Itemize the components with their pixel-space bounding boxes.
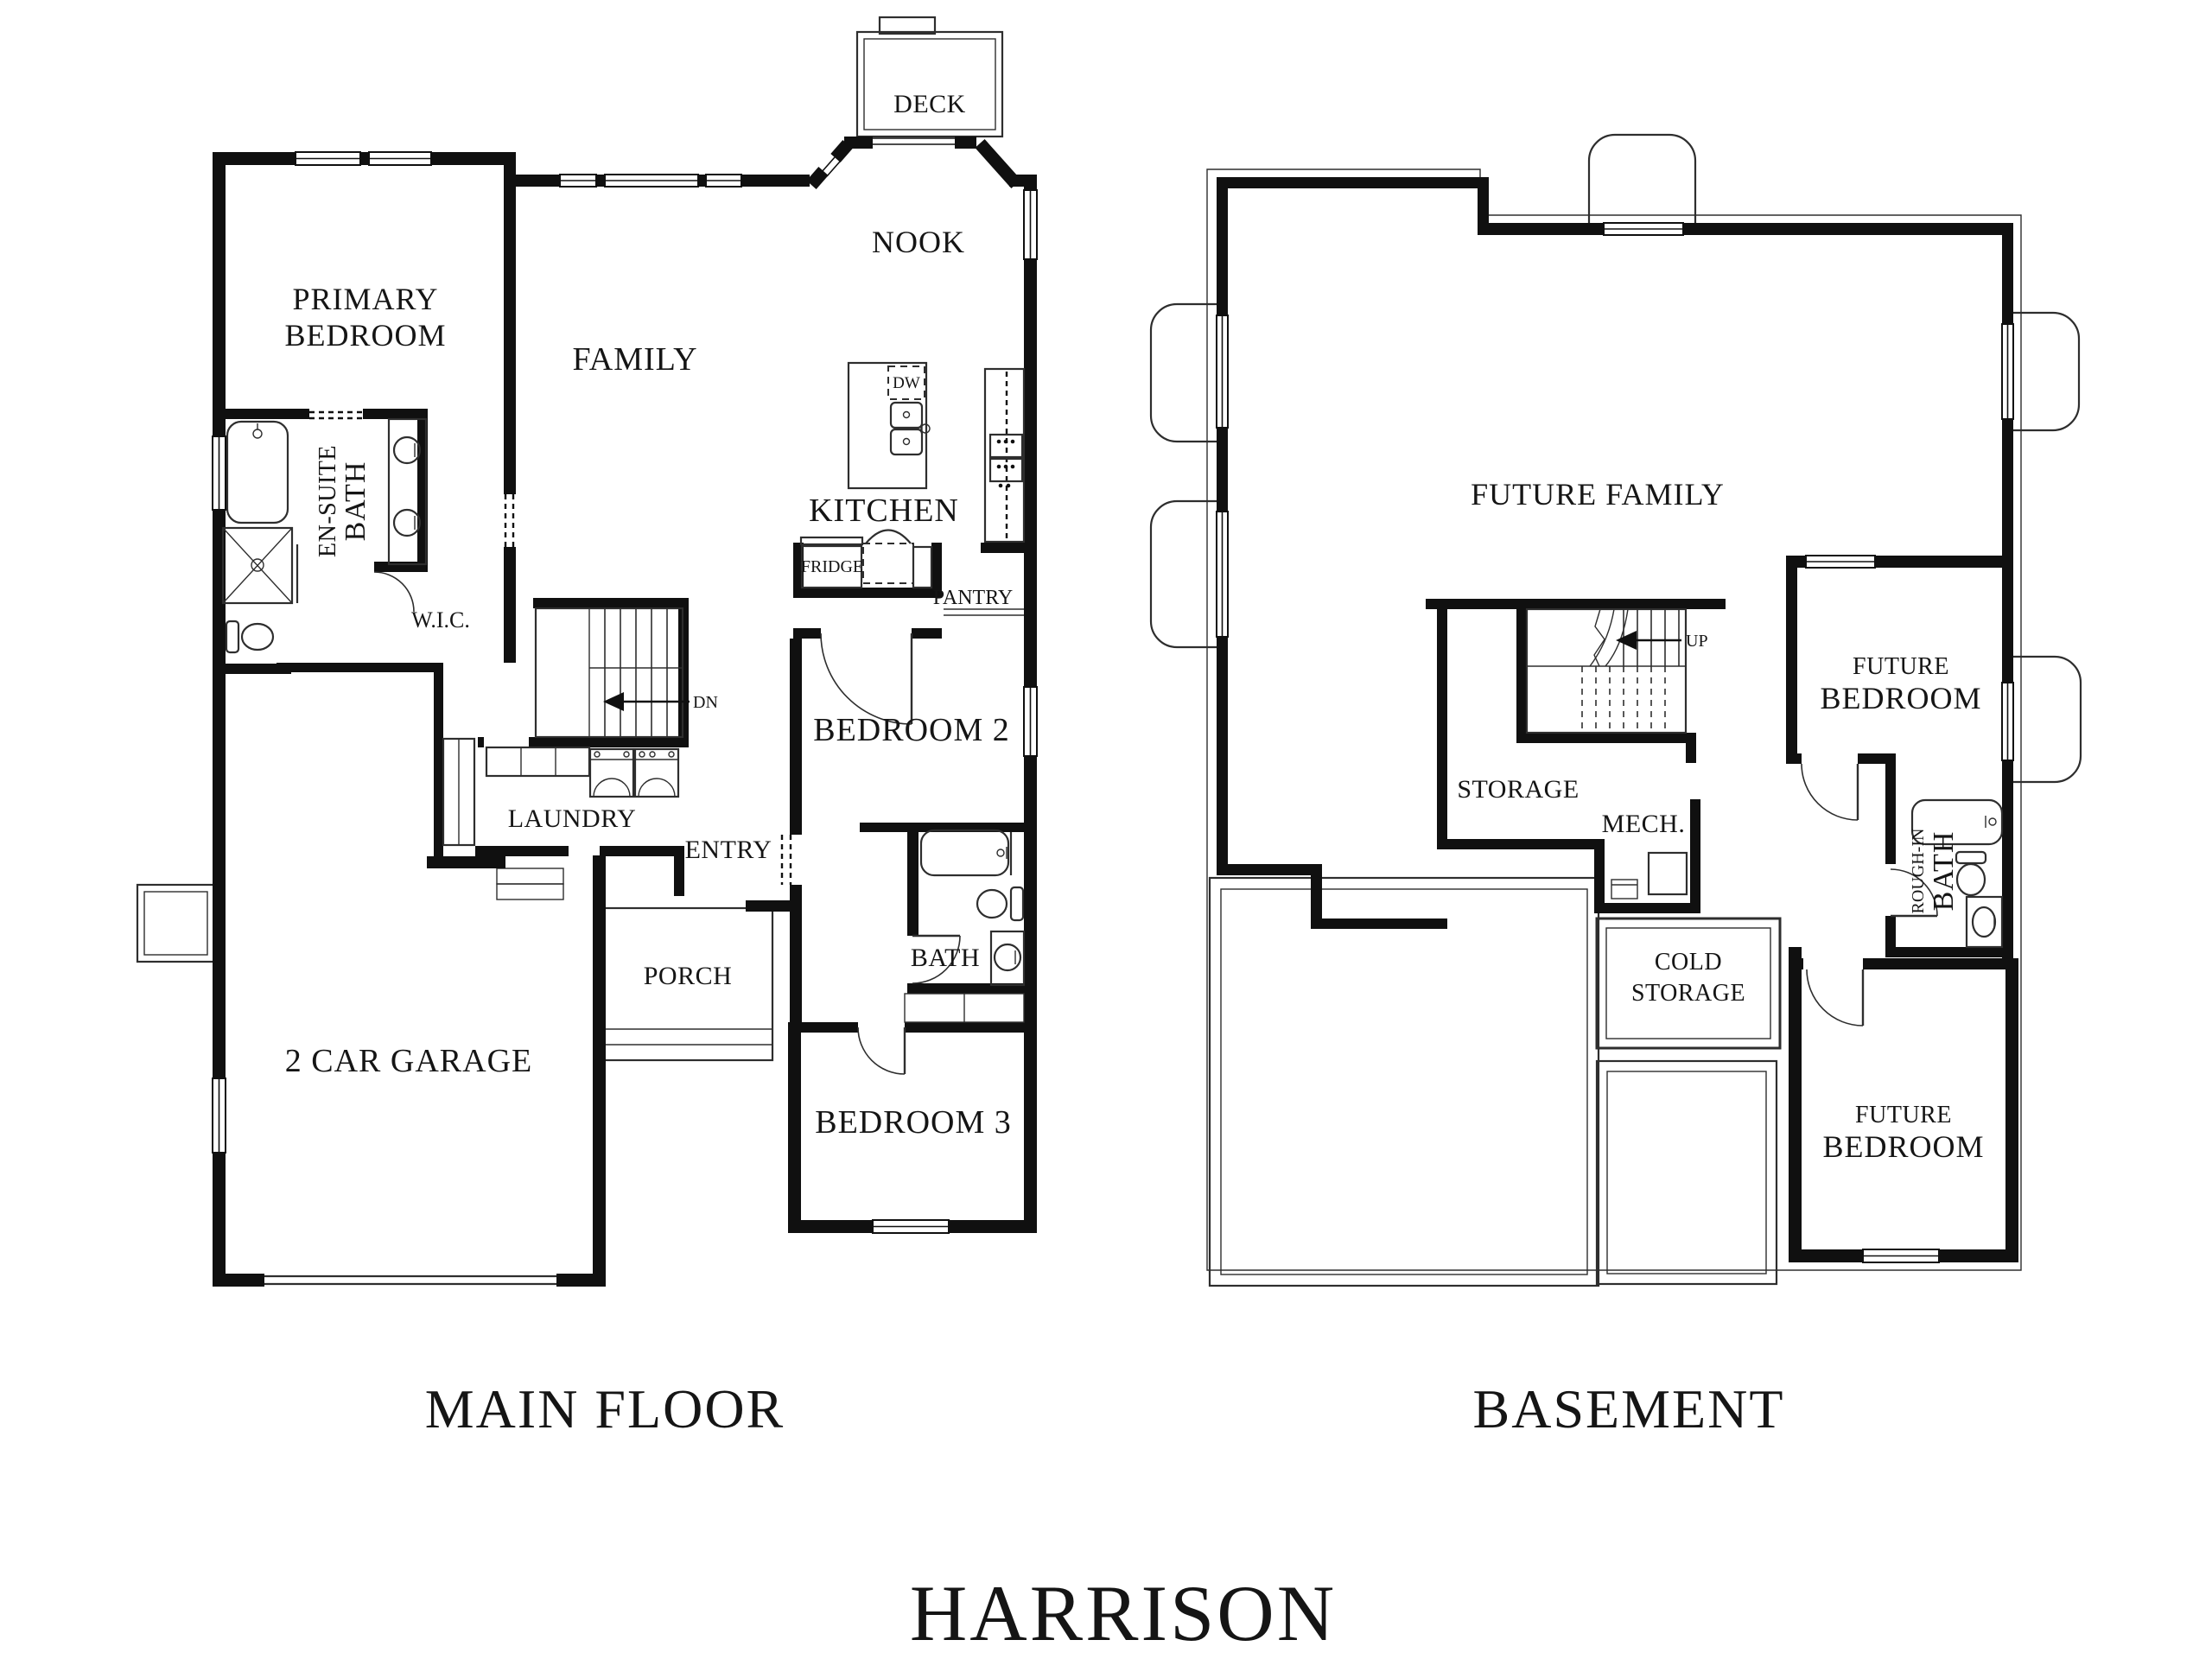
door-swing (858, 1027, 905, 1074)
ensuite-bath-label: BATH (340, 461, 372, 542)
door-swing (821, 633, 912, 724)
rough-in-bath-label: ROUGH-IN (1909, 829, 1928, 914)
door-swing (1807, 969, 1863, 1026)
unexcavated-area (1597, 1061, 1777, 1284)
basement-stairs (1527, 609, 1686, 733)
bathtub-fixture (921, 830, 1011, 875)
primary-bedroom-label: BEDROOM (284, 318, 446, 353)
main-floor-caption: MAIN FLOOR (425, 1378, 785, 1440)
basement-walls (1217, 177, 2018, 1262)
porch-label: PORCH (644, 962, 733, 990)
storage-label: STORAGE (1457, 775, 1579, 804)
door-swing (1802, 764, 1858, 820)
main-floor-labels: PRIMARY BEDROOM EN-SUITE BATH W.I.C. FAM… (284, 90, 1013, 1141)
primary-bedroom-label: PRIMARY (292, 282, 438, 316)
window (873, 1220, 949, 1233)
unexcavated-area (1210, 878, 1599, 1286)
window (605, 175, 698, 187)
window (1024, 190, 1037, 259)
plan-title: HARRISON (910, 1569, 1337, 1657)
door-swing (374, 572, 414, 612)
future-family-label: FUTURE FAMILY (1471, 477, 1725, 512)
kitchen-wall-cabinets (985, 369, 1024, 542)
window (1024, 687, 1037, 756)
main-stairs (536, 608, 690, 737)
sliding-door (873, 138, 955, 144)
up-label: UP (1686, 632, 1708, 651)
window (706, 175, 741, 187)
window (369, 152, 431, 165)
future-bedroom-lower-label: BEDROOM (1822, 1129, 1984, 1164)
bath-label: BATH (911, 944, 980, 972)
window (296, 152, 360, 165)
toilet-fixture (977, 887, 1023, 920)
cold-storage-label: COLD (1655, 949, 1722, 976)
window (2002, 324, 2013, 419)
main-floor-plan: PRIMARY BEDROOM EN-SUITE BATH W.I.C. FAM… (137, 17, 1037, 1287)
window (1217, 315, 1228, 428)
cold-storage-label: STORAGE (1631, 980, 1745, 1007)
shower-fixture (223, 528, 297, 603)
toilet-fixture (226, 621, 273, 652)
nook-label: NOOK (872, 225, 965, 259)
vanity-sink (991, 931, 1024, 985)
stairs-down-arrow-icon (603, 692, 690, 711)
future-bedroom-upper-label: FUTURE (1853, 653, 1949, 680)
bedroom3-label: BEDROOM 3 (815, 1104, 1012, 1141)
window (1806, 556, 1875, 568)
laundry-label: LAUNDRY (508, 804, 637, 833)
garage-label: 2 CAR GARAGE (285, 1043, 532, 1079)
washer-fixture (590, 749, 633, 797)
toilet-fixture (1956, 852, 1986, 895)
fridge-label: FRIDGE (801, 557, 863, 576)
dn-label: DN (693, 693, 718, 712)
future-bedroom-lower-label: FUTURE (1855, 1102, 1952, 1128)
window (213, 436, 226, 510)
garage-door (264, 1276, 556, 1284)
future-bedroom-upper-label: BEDROOM (1820, 681, 1981, 715)
pantry-shelves (944, 609, 1024, 615)
vanity-sink (1967, 897, 2002, 947)
basement-plan: FUTURE FAMILY UP STORAGE MECH. COLD STOR… (1151, 135, 2081, 1286)
mech-label: MECH. (1602, 810, 1686, 838)
window (213, 1078, 226, 1153)
captions: MAIN FLOOR BASEMENT HARRISON (425, 1378, 1785, 1657)
basement-caption: BASEMENT (1473, 1378, 1785, 1440)
family-label: FAMILY (572, 341, 697, 378)
window (1217, 512, 1228, 637)
pantry-label: PANTRY (933, 587, 1013, 609)
rough-in-bath-label: BATH (1928, 831, 1960, 912)
floorplan-canvas: PRIMARY BEDROOM EN-SUITE BATH W.I.C. FAM… (0, 0, 2212, 1659)
garage-entry-steps (497, 868, 563, 899)
wic-label: W.I.C. (411, 607, 470, 632)
deck-label: DECK (893, 90, 966, 118)
window (2002, 683, 2013, 760)
laundry-counter (486, 747, 589, 776)
dryer-fixture (635, 749, 678, 797)
kitchen-label: KITCHEN (809, 493, 959, 529)
bedroom2-label: BEDROOM 2 (813, 712, 1010, 748)
stairs-up-arrow-icon (1616, 631, 1681, 650)
dw-label: DW (893, 374, 920, 392)
deck-outline (857, 17, 1002, 137)
bathtub-fixture (227, 422, 288, 523)
garage-bumpout (137, 885, 214, 962)
window (1863, 1249, 1939, 1262)
window (560, 175, 596, 187)
entry-closet (443, 739, 474, 845)
bedroom3-closet (905, 994, 1024, 1022)
water-heater-fixture (1611, 853, 1687, 899)
window (1604, 223, 1683, 235)
floorplan-page: PRIMARY BEDROOM EN-SUITE BATH W.I.C. FAM… (0, 0, 2212, 1659)
ensuite-bath-label: EN-SUITE (315, 445, 341, 557)
entry-label: ENTRY (685, 836, 772, 864)
